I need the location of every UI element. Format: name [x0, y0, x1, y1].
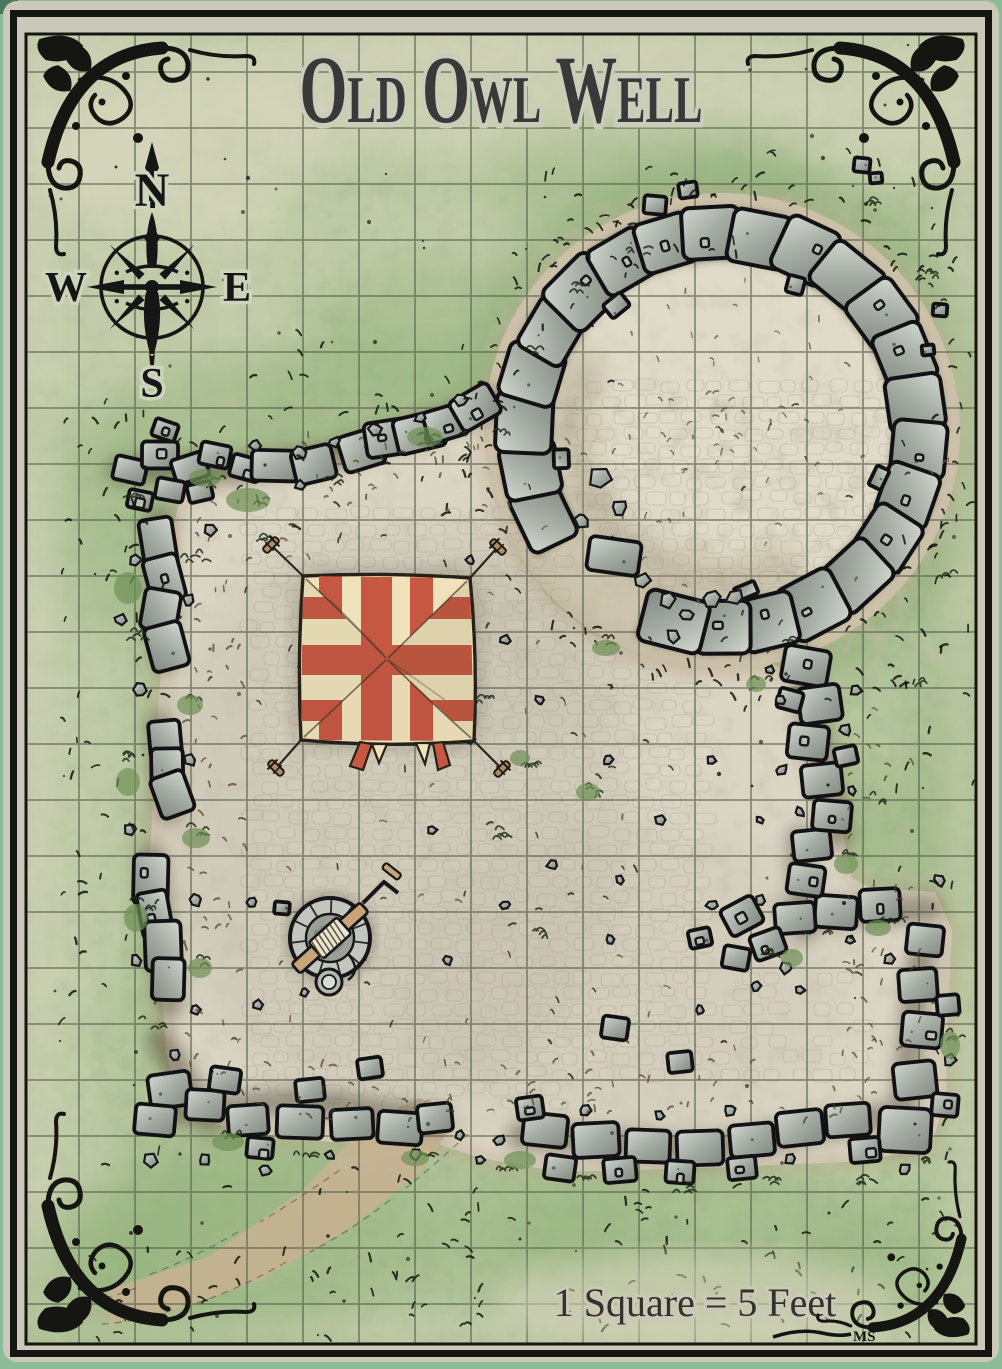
svg-text:1 Square = 5 Feet: 1 Square = 5 Feet	[554, 1280, 837, 1325]
svg-text:N: N	[135, 164, 170, 217]
svg-text:Old Owl Well: Old Owl Well	[299, 37, 702, 143]
svg-text:E: E	[223, 265, 251, 311]
svg-text:S: S	[140, 361, 163, 407]
svg-text:W: W	[45, 265, 87, 311]
